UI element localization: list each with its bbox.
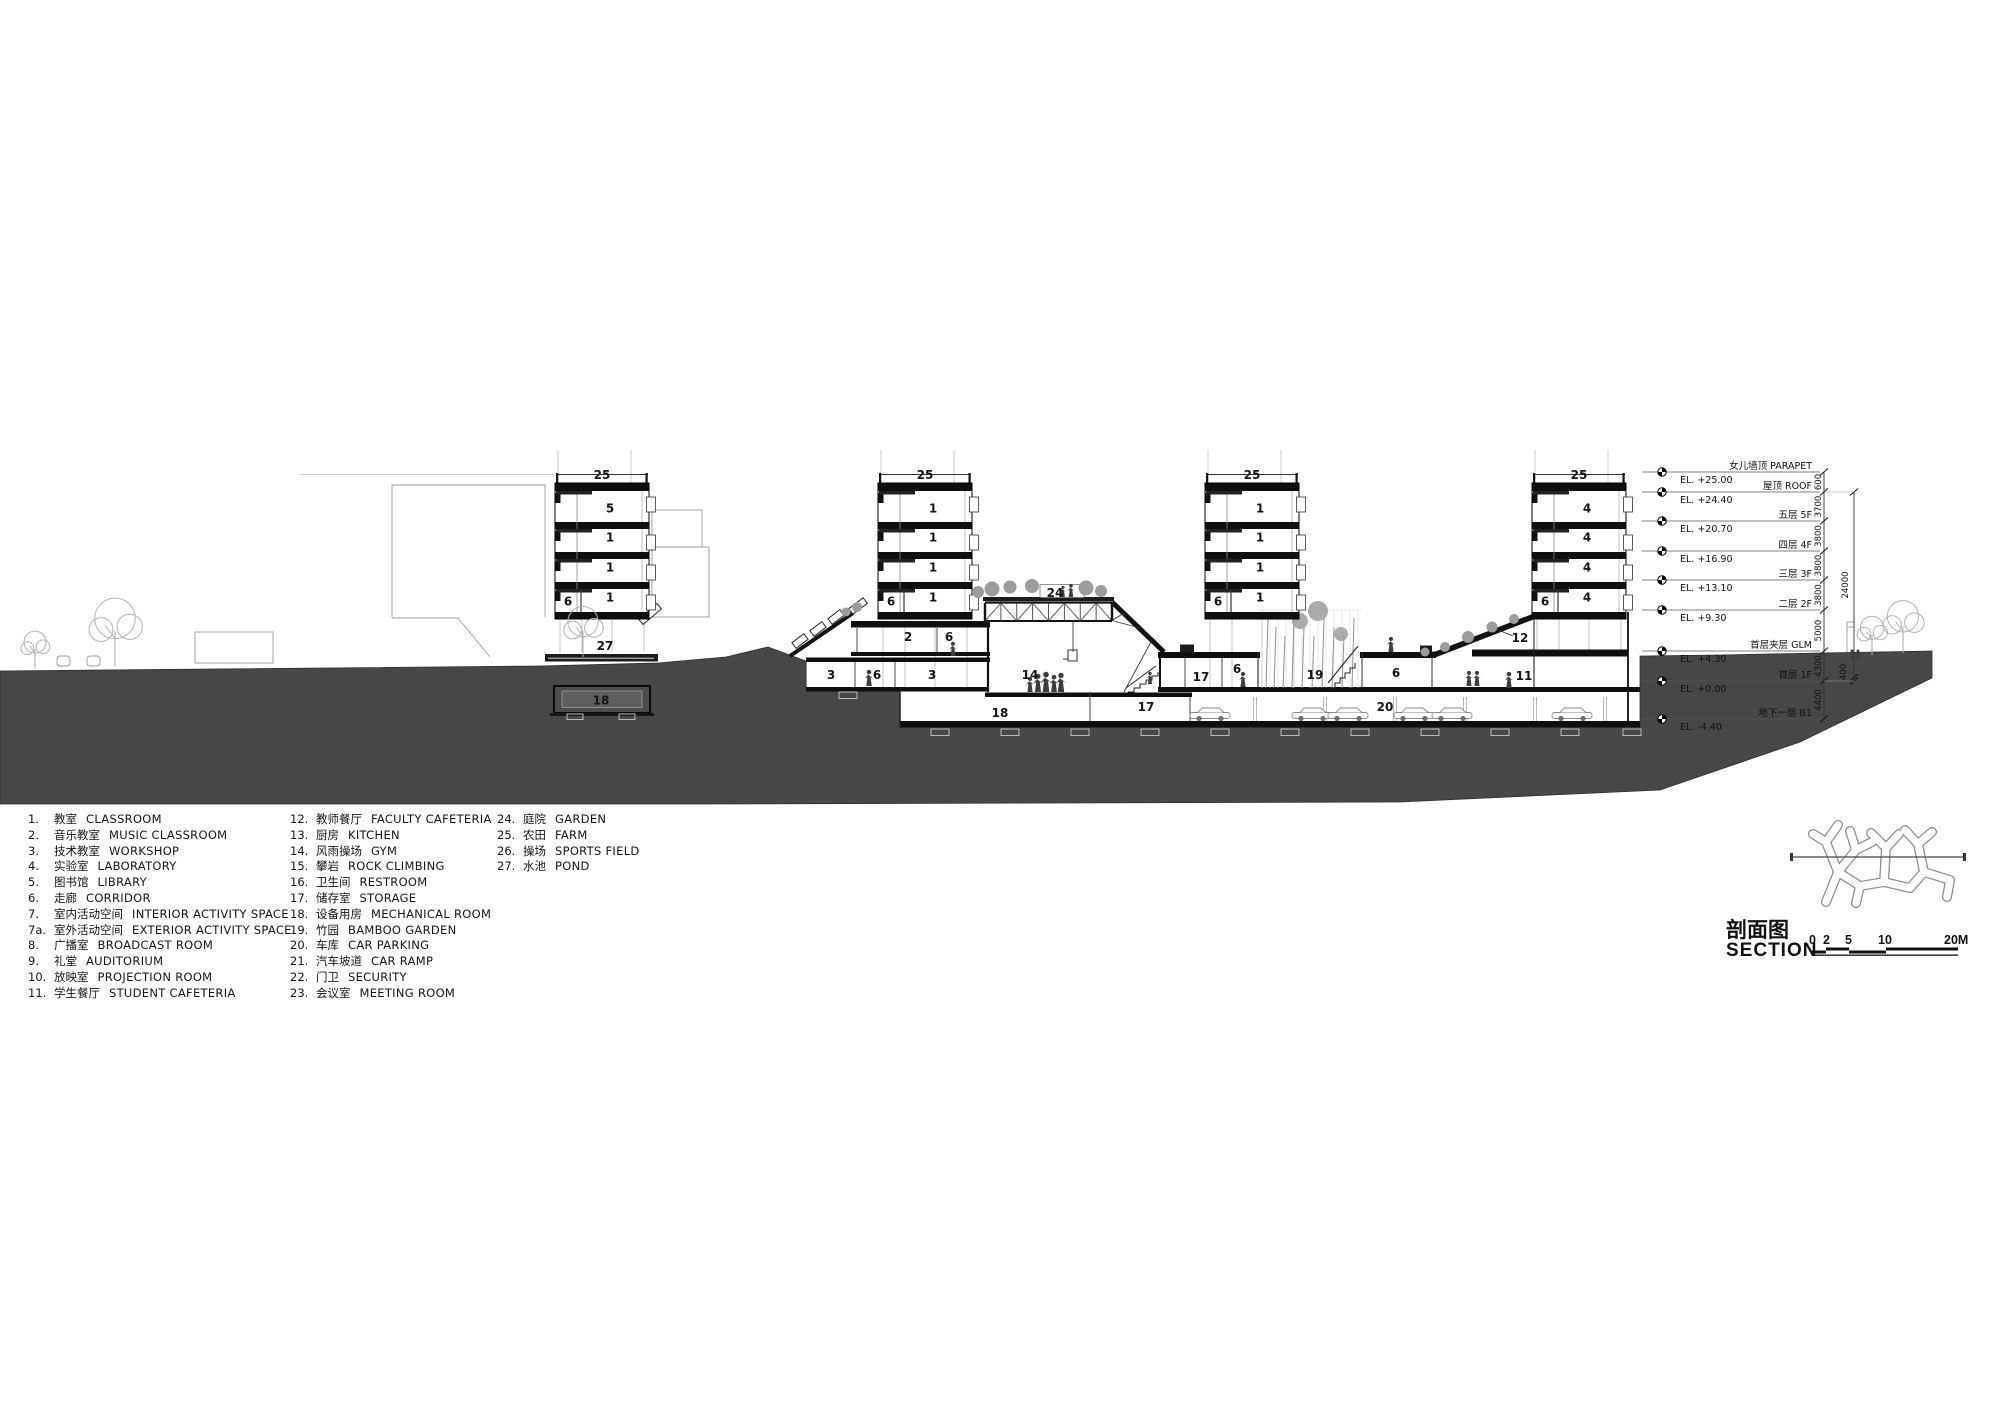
car — [1552, 708, 1592, 721]
legend-item: 9.礼堂AUDITORIUM — [28, 954, 292, 970]
dimension-segment: 4400 — [1814, 689, 1824, 711]
room-label: 3 — [827, 668, 835, 682]
legend-item: 23.会议室MEETING ROOM — [290, 986, 492, 1002]
legend-item: 13.厨房KITCHEN — [290, 828, 492, 844]
legend-item: 14.风雨操场GYM — [290, 844, 492, 860]
dimension-segment: 3800 — [1814, 525, 1824, 547]
room-label: 1 — [1256, 561, 1264, 575]
room-label: 6 — [873, 668, 881, 682]
tree-outline — [21, 631, 50, 668]
car — [1432, 708, 1472, 721]
room-label: 3 — [928, 668, 936, 682]
level-elevation: EL. -4.40 — [1680, 722, 1722, 733]
room-label: 2 — [904, 630, 912, 644]
section-drawing-page: { "drawing_title": {"zh": "剖面图", "en": "… — [0, 0, 2000, 1414]
room-label: 6 — [1214, 595, 1222, 609]
legend-item: 16.卫生间RESTROOM — [290, 875, 492, 891]
room-label: 1 — [929, 591, 937, 605]
person-silhouette — [1473, 671, 1481, 686]
bush — [1487, 622, 1498, 633]
bush — [1025, 579, 1039, 593]
person-silhouette — [1041, 672, 1051, 692]
svg-text:20M: 20M — [1944, 933, 1968, 947]
bush — [972, 586, 984, 598]
level-elevation: EL. +20.70 — [1680, 524, 1733, 535]
level-elevation: EL. +13.10 — [1680, 583, 1733, 594]
legend-item: 1.教室CLASSROOM — [28, 812, 292, 828]
level-elevation: EL. +24.40 — [1680, 495, 1733, 506]
tower-t1: 2551116 — [555, 450, 656, 620]
person-silhouette — [1056, 673, 1066, 692]
svg-text:2: 2 — [1823, 933, 1830, 947]
legend-item: 24.庭院GARDEN — [497, 812, 640, 828]
level-label: 地下一层 B1 — [1758, 707, 1812, 719]
context-building-outline — [392, 485, 545, 657]
room-label: 24 — [1047, 586, 1064, 600]
dimension-segment: 4300 — [1814, 655, 1824, 677]
section-canvas: 2551116251111625111162544446 27 18 2 6 3… — [0, 0, 2000, 1414]
room-label: 1 — [929, 561, 937, 575]
bush — [842, 608, 851, 617]
tower-t2: 2511116 — [878, 450, 979, 620]
room-label: 17 — [1193, 670, 1210, 684]
room-label: 18 — [992, 706, 1009, 720]
dimension-segment: 3800 — [1814, 555, 1824, 577]
dimension-segment: 3800 — [1814, 584, 1824, 606]
room-label: 1 — [1256, 502, 1264, 516]
level-label: 首层夹层 GLM — [1750, 639, 1812, 651]
planter-outline — [57, 656, 70, 666]
room-label: 1 — [929, 502, 937, 516]
legend-item: 7a.室外活动空间EXTERIOR ACTIVITY SPACE — [28, 923, 292, 939]
room-label-tank: 18 — [593, 694, 610, 708]
level-marker: 二层 2FEL. +9.30 — [1642, 599, 1820, 624]
car — [1394, 708, 1434, 721]
room-label: 1 — [606, 591, 614, 605]
title-block: 剖面图 SECTION 0 2 5 10 20M — [1726, 825, 1968, 961]
car — [1292, 708, 1332, 721]
level-marker: 三层 3FEL. +13.10 — [1642, 569, 1820, 594]
level-elevation: EL. +0.00 — [1680, 684, 1726, 695]
svg-text:10: 10 — [1878, 933, 1892, 947]
level-elevation: EL. +4.30 — [1680, 654, 1726, 665]
bush — [1004, 581, 1017, 594]
skylights — [639, 598, 868, 649]
tree-outline — [1883, 601, 1924, 653]
dimension-segment: 5000 — [1814, 620, 1824, 642]
room-label: 12 — [1512, 631, 1529, 645]
drawing-title-zh: 剖面图 — [1726, 918, 1789, 942]
level-label: 三层 3F — [1778, 569, 1812, 580]
tower-t3: 2511116 — [1205, 450, 1306, 620]
person-silhouette — [1465, 671, 1473, 686]
room-label: 20 — [1377, 700, 1394, 714]
car — [1328, 708, 1368, 721]
level-label: 四层 4F — [1778, 540, 1812, 551]
room-label: 1 — [1256, 531, 1264, 545]
dimension-overall: 24000 — [1841, 571, 1851, 598]
bush — [1421, 648, 1430, 657]
legend-item: 27.水池POND — [497, 859, 640, 875]
svg-text:5: 5 — [1845, 933, 1852, 947]
legend-item: 25.农田FARM — [497, 828, 640, 844]
room-label: 4 — [1583, 531, 1591, 545]
car — [1190, 708, 1230, 721]
room-label: 4 — [1583, 502, 1591, 516]
room-label: 5 — [606, 502, 614, 516]
level-elevation: EL. +9.30 — [1680, 613, 1726, 624]
legend-item: 4.实验室LABORATORY — [28, 859, 292, 875]
planter-outline — [87, 656, 100, 666]
legend-item: 3.技术教室WORKSHOP — [28, 844, 292, 860]
legend-item: 22.门卫SECURITY — [290, 970, 492, 986]
room-label: 6 — [564, 595, 572, 609]
bush — [852, 602, 862, 612]
person-silhouette — [1387, 637, 1395, 652]
towers: 2551116251111625111162544446 — [555, 450, 1633, 620]
level-label: 首层 1F — [1778, 669, 1812, 681]
legend-item: 20.车库CAR PARKING — [290, 938, 492, 954]
legend-item: 12.教师餐厅FACULTY CAFETERIA — [290, 812, 492, 828]
bush — [985, 582, 1000, 597]
level-marker: 五层 5FEL. +20.70 — [1642, 510, 1820, 535]
person-silhouette — [1050, 675, 1059, 692]
legend-column-3: 24.庭院GARDEN25.农田FARM26.操场SPORTS FIELD27.… — [497, 812, 640, 875]
level-marker: 四层 4FEL. +16.90 — [1642, 540, 1820, 565]
room-label: 1 — [606, 531, 614, 545]
bush — [1079, 581, 1094, 596]
room-label: 1 — [1256, 591, 1264, 605]
room-label-pond: 27 — [597, 639, 614, 653]
dimension-minor: 400 — [1839, 664, 1849, 680]
room-label: 25 — [1244, 468, 1261, 482]
legend-item: 19.竹园BAMBOO GARDEN — [290, 923, 492, 939]
drawing-title-en: SECTION — [1726, 940, 1817, 961]
room-label: 1 — [606, 561, 614, 575]
key-plan — [1790, 825, 1966, 903]
room-label: 11 — [1516, 669, 1533, 683]
room-label: 6 — [887, 595, 895, 609]
basketball-hoop — [1063, 622, 1077, 661]
room-label: 6 — [945, 630, 953, 644]
legend-column-1: 1.教室CLASSROOM2.音乐教室MUSIC CLASSROOM3.技术教室… — [28, 812, 292, 1002]
level-label: 女儿墙顶 PARAPET — [1729, 460, 1812, 472]
person-silhouette — [1505, 672, 1513, 688]
legend-column-2: 12.教师餐厅FACULTY CAFETERIA13.厨房KITCHEN14.风… — [290, 812, 492, 1002]
pond-section — [545, 654, 658, 662]
room-label: 25 — [594, 468, 611, 482]
room-label: 19 — [1307, 668, 1324, 682]
room-label: 25 — [1571, 468, 1588, 482]
legend-item: 7.室内活动空间INTERIOR ACTIVITY SPACE — [28, 907, 292, 923]
legend-item: 2.音乐教室MUSIC CLASSROOM — [28, 828, 292, 844]
legend-item: 11.学生餐厅STUDENT CAFETERIA — [28, 986, 292, 1002]
sloped-roof-west — [790, 613, 853, 656]
legend-item: 8.广播室BROADCAST ROOM — [28, 938, 292, 954]
svg-text:0: 0 — [1809, 933, 1816, 947]
room-label: 1 — [929, 531, 937, 545]
room-label: 6 — [1233, 662, 1241, 676]
room-label: 4 — [1583, 591, 1591, 605]
level-label: 屋顶 ROOF — [1763, 481, 1812, 492]
legend-item: 5.图书馆LIBRARY — [28, 875, 292, 891]
legend-item: 21.汽车坡道CAR RAMP — [290, 954, 492, 970]
gym-roof-truss — [985, 603, 1112, 622]
bush — [1440, 642, 1450, 652]
tower-t4: 2544446 — [1532, 450, 1633, 620]
level-label: 五层 5F — [1778, 510, 1812, 521]
dimension-segment: 3700 — [1814, 496, 1824, 518]
bush — [1462, 631, 1474, 643]
level-elevation: EL. +25.00 — [1680, 475, 1733, 486]
legend-item: 10.放映室PROJECTION ROOM — [28, 970, 292, 986]
level-label: 二层 2F — [1778, 599, 1812, 610]
dimension-segment: 600 — [1814, 474, 1824, 490]
level-elevation: EL. +16.90 — [1680, 554, 1733, 565]
legend-item: 15.攀岩ROCK CLIMBING — [290, 859, 492, 875]
bush — [1509, 614, 1519, 624]
scale-bar: 0 2 5 10 20M — [1809, 933, 1968, 956]
room-label: 6 — [1392, 666, 1400, 680]
bush — [1095, 585, 1107, 597]
legend-item: 26.操场SPORTS FIELD — [497, 844, 640, 860]
context-building-outline — [195, 632, 273, 663]
legend-item: 6.走廊CORRIDOR — [28, 891, 292, 907]
room-label: 25 — [917, 468, 934, 482]
room-label: 17 — [1138, 700, 1155, 714]
legend-item: 17.储存室STORAGE — [290, 891, 492, 907]
room-label: 14 — [1022, 668, 1039, 682]
room-label: 4 — [1583, 561, 1591, 575]
legend-item: 18.设备用房MECHANICAL ROOM — [290, 907, 492, 923]
room-label: 6 — [1541, 595, 1549, 609]
